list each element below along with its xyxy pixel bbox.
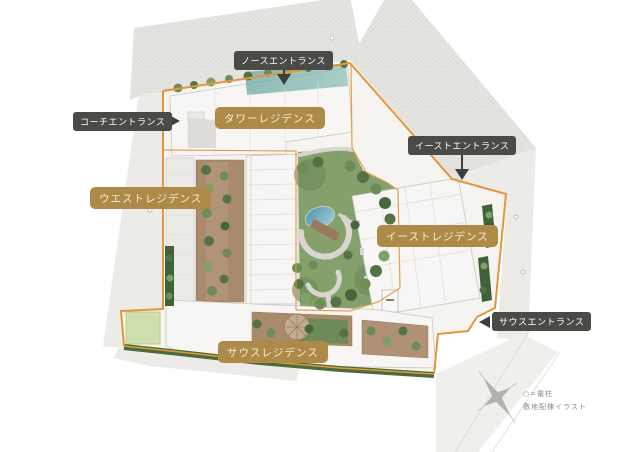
east-entrance-arrow-icon <box>455 169 469 180</box>
south-entrance-arrow-icon <box>479 316 490 328</box>
south-entrance-label: サウスエントランス <box>492 312 591 331</box>
site-plan-illustration: ノースエントランス コーチエントランス イーストエントランス サウスエントランス… <box>0 0 640 452</box>
caption-legend: ○=電柱 <box>523 388 587 401</box>
caption-title: 敷地配棟イラスト <box>523 401 587 414</box>
illustration-caption: ○=電柱 敷地配棟イラスト <box>523 388 587 413</box>
east-residence-building <box>352 178 480 316</box>
west-residence-label: ウエストレジデンス <box>90 187 211 209</box>
east-residence-label: イーストレジデンス <box>377 225 498 247</box>
south-deck-east <box>362 320 428 358</box>
west-residence-building <box>166 154 298 306</box>
east-entrance-label: イーストエントランス <box>408 136 516 155</box>
north-entrance-arrow-icon <box>277 74 291 85</box>
coach-entrance-court <box>188 118 216 148</box>
north-entrance-label: ノースエントランス <box>234 51 333 70</box>
coach-entrance-label: コーチエントランス <box>73 112 172 131</box>
tower-residence-label: タワーレジデンス <box>215 107 325 129</box>
south-residence-label: サウスレジデンス <box>218 341 328 363</box>
service-structure <box>382 290 398 312</box>
lawn-square <box>126 312 160 344</box>
